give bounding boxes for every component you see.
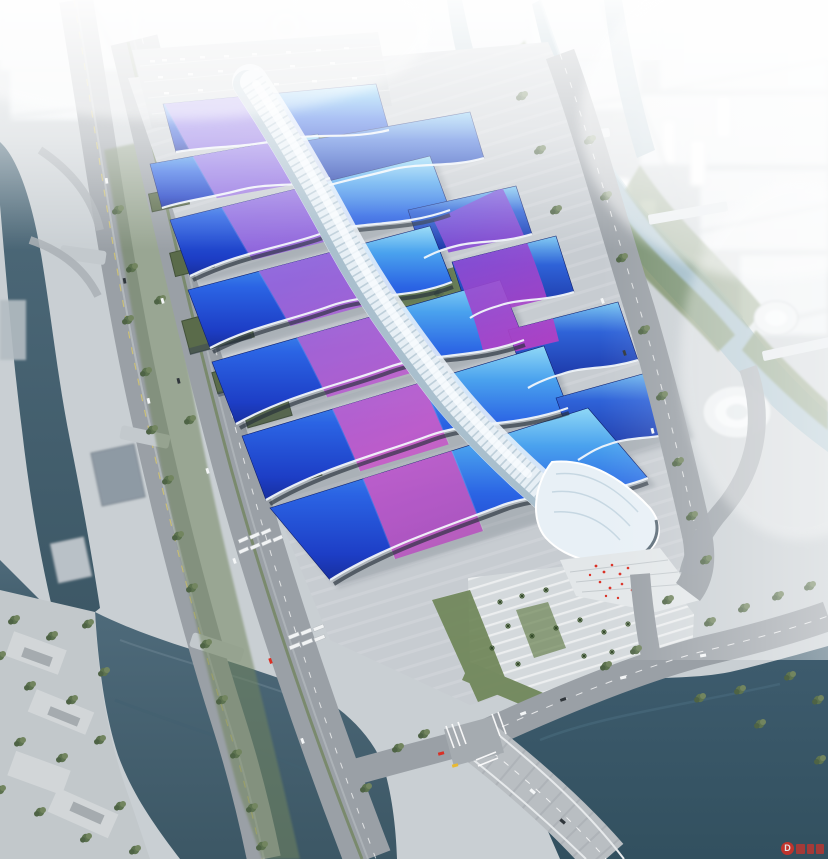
watermark-logo: D xyxy=(781,842,824,855)
watermark-glyph-3 xyxy=(816,844,824,854)
watermark-d-badge: D xyxy=(781,842,794,855)
watermark-glyph-2 xyxy=(807,844,814,854)
watermark-glyph-1 xyxy=(796,844,805,854)
aerial-rendering: D xyxy=(0,0,828,859)
scene-canvas xyxy=(0,0,828,859)
